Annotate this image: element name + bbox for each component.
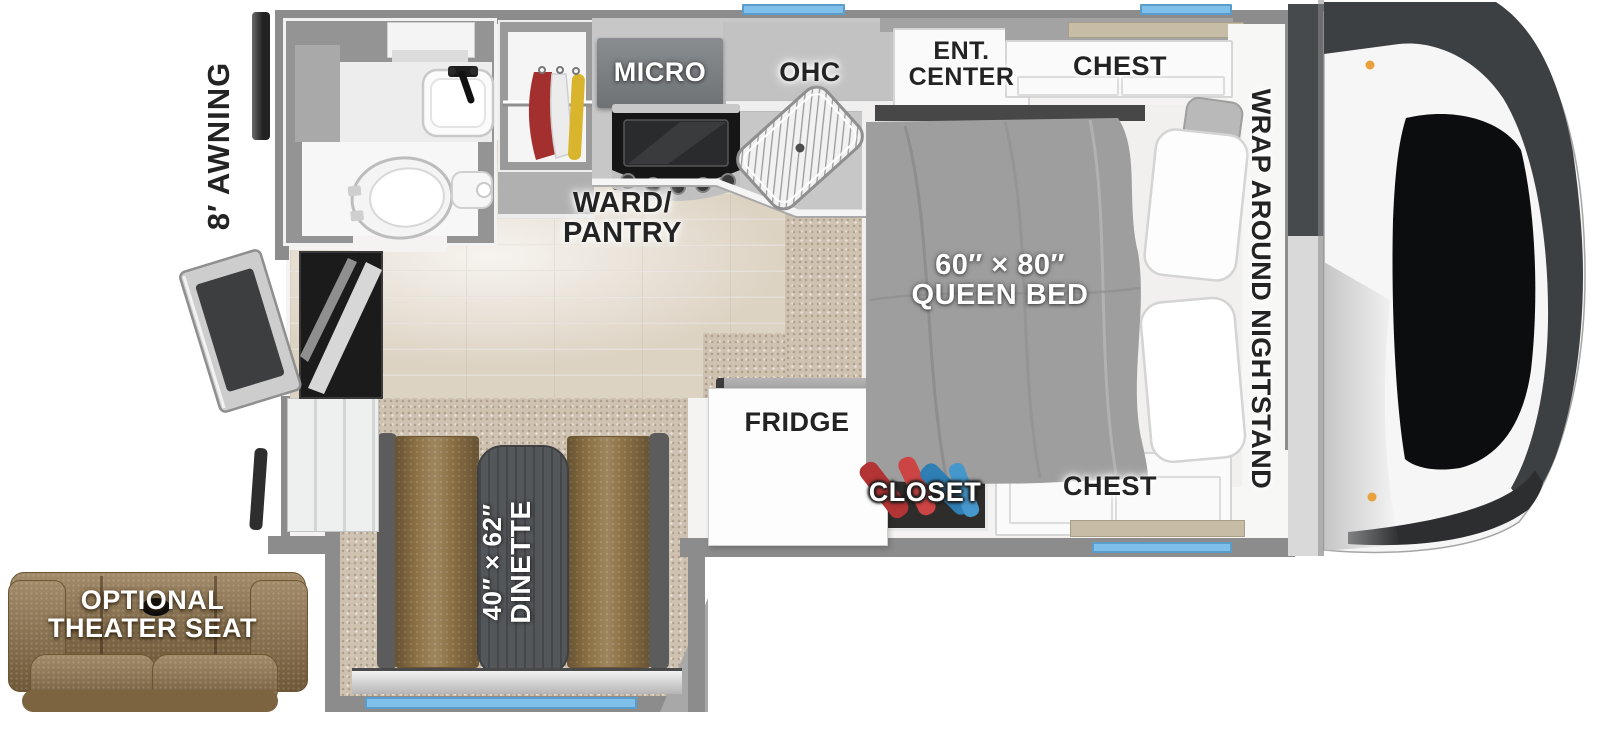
fridge-label: FRIDGE xyxy=(708,408,886,436)
entry-door xyxy=(179,249,302,413)
queen-bed-label: 60″ × 80″ QUEEN BED xyxy=(880,250,1120,310)
entry-steps xyxy=(300,252,382,398)
theater-seat-base xyxy=(22,690,278,712)
tp-holder xyxy=(452,172,492,208)
ward-pantry-label-line2: PANTRY xyxy=(540,218,705,248)
pillow-bottom xyxy=(1139,296,1247,464)
bath-sink-fixture xyxy=(423,66,493,136)
ward-pantry-label: WARD/ PANTRY xyxy=(540,188,705,248)
floorplan-canvas: 8′ AWNING xyxy=(0,0,1600,735)
chest-top-label: CHEST xyxy=(1020,52,1220,80)
nightstand-label: WRAP AROUND NIGHTSTAND xyxy=(1241,39,1275,539)
queen-bed-label-line2: QUEEN BED xyxy=(880,280,1120,310)
ent-center-label: ENT. CENTER xyxy=(893,38,1030,90)
micro-label: MICRO xyxy=(597,58,723,86)
pillow-top xyxy=(1143,128,1250,283)
toilet-fixture xyxy=(345,153,456,243)
grab-handle xyxy=(249,448,268,531)
ohc-label: OHC xyxy=(740,58,880,86)
theater-seat-label-line1: OPTIONAL xyxy=(25,586,280,614)
dinette-label-line2: DINETTE xyxy=(506,442,535,682)
truck-cab xyxy=(1288,0,1585,556)
ent-center-label-line2: CENTER xyxy=(893,64,1030,90)
ward-pantry-label-line1: WARD/ xyxy=(540,188,705,218)
queen-bed-label-line1: 60″ × 80″ xyxy=(880,250,1120,280)
chest-bottom-label: CHEST xyxy=(1005,472,1215,500)
theater-seat-label-line2: THEATER SEAT xyxy=(25,614,280,642)
theater-seat-label: OPTIONAL THEATER SEAT xyxy=(25,586,280,642)
wardrobe-clothes xyxy=(503,67,592,160)
dinette-label: 40″ × 62″ DINETTE xyxy=(479,442,567,682)
dinette-label-line1: 40″ × 62″ xyxy=(479,442,506,682)
closet-label: CLOSET xyxy=(855,478,995,506)
ent-center-label-line1: ENT. xyxy=(893,38,1030,64)
